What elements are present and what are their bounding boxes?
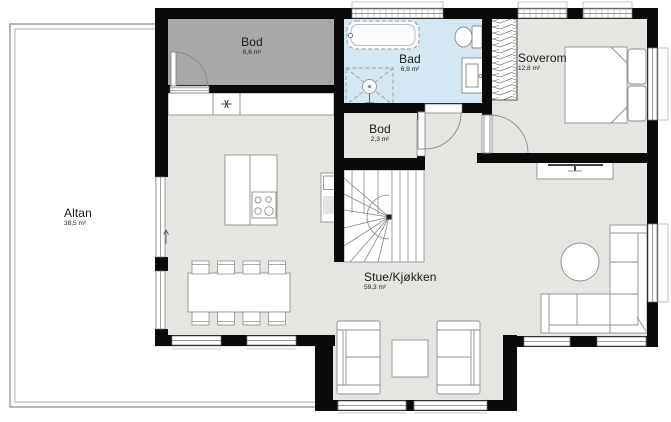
window [524, 337, 570, 346]
window [648, 48, 668, 120]
window [648, 224, 668, 302]
toilet [455, 26, 482, 48]
floor-plan-drawing [0, 0, 671, 422]
round-table [561, 243, 599, 281]
winder-stairs [344, 170, 424, 262]
pillow [628, 49, 646, 84]
window [352, 9, 443, 18]
window [583, 9, 632, 18]
dining-table [188, 273, 290, 312]
bathtub [347, 21, 419, 49]
pillow [628, 86, 646, 121]
armchair-right [437, 321, 480, 394]
window [414, 401, 487, 413]
window [518, 9, 567, 18]
kitchen-counter [168, 93, 334, 115]
storage-room-fill [166, 17, 336, 89]
armchair-left [337, 321, 380, 394]
door-opening [170, 86, 209, 93]
door-opening [425, 104, 462, 113]
floor-plan: Altan 38,5 m² Bod 6,6 m² Bad 6,9 m² Sove… [0, 0, 671, 422]
wardrobe [490, 18, 517, 100]
window [597, 337, 646, 346]
kitchen-island [225, 155, 277, 225]
sliding-door [156, 177, 165, 257]
faucet-icon [349, 34, 353, 38]
coffee-table [392, 340, 428, 377]
window [338, 401, 406, 413]
window [156, 271, 165, 329]
